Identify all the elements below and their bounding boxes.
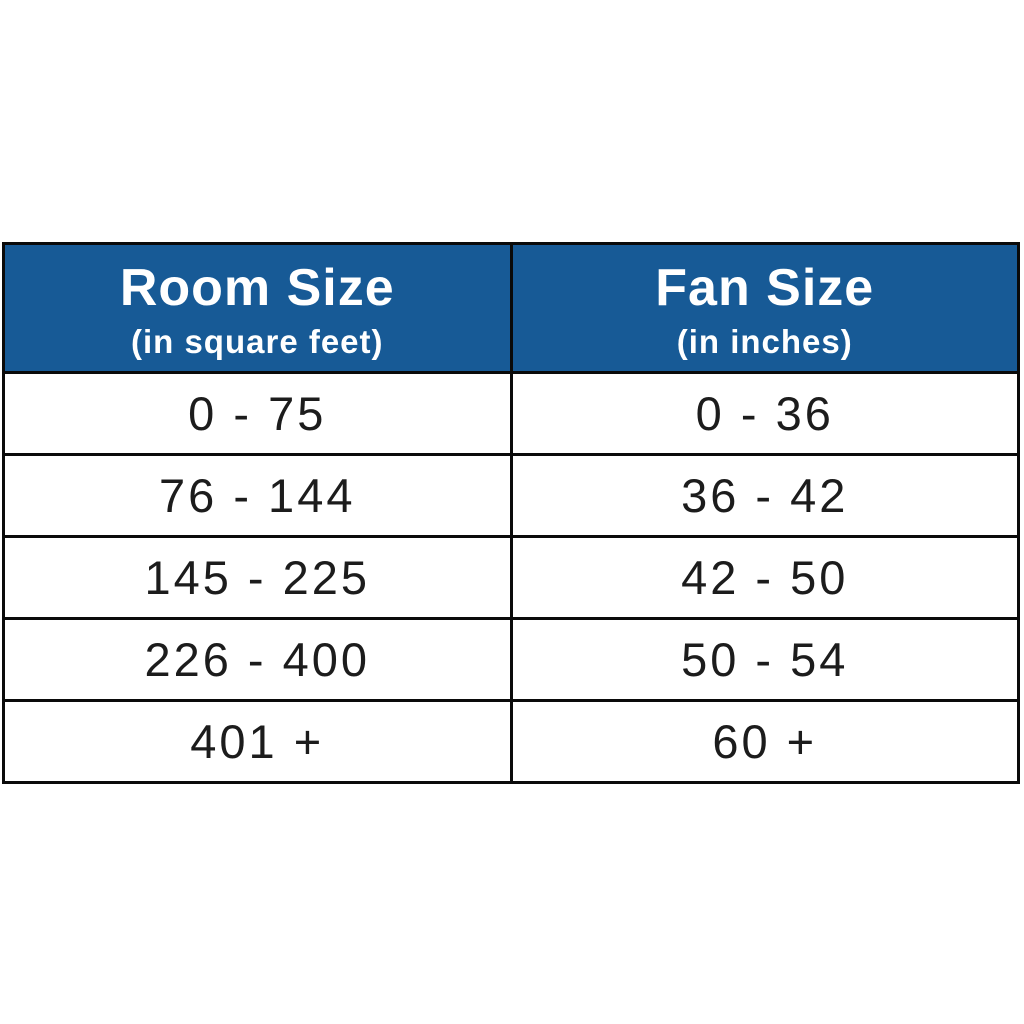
room-size-header-cell: Room Size (in square feet) [4,244,512,373]
room-fan-size-table: Room Size (in square feet) Fan Size (in … [2,242,1020,784]
fan-size-header-cell: Fan Size (in inches) [511,244,1019,373]
fan-size-cell: 50 - 54 [511,619,1019,701]
table-row: 145 - 225 42 - 50 [4,537,1019,619]
table-body: 0 - 75 0 - 36 76 - 144 36 - 42 145 - 225… [4,373,1019,783]
room-size-cell: 0 - 75 [4,373,512,455]
fan-size-cell: 60 + [511,701,1019,783]
table-row: 226 - 400 50 - 54 [4,619,1019,701]
table-header: Room Size (in square feet) Fan Size (in … [4,244,1019,373]
table-row: 76 - 144 36 - 42 [4,455,1019,537]
table-row: 401 + 60 + [4,701,1019,783]
room-size-title: Room Size [5,260,510,317]
room-size-cell: 401 + [4,701,512,783]
room-size-cell: 226 - 400 [4,619,512,701]
fan-size-title: Fan Size [513,260,1018,317]
fan-size-cell: 36 - 42 [511,455,1019,537]
page-background: Room Size (in square feet) Fan Size (in … [0,0,1024,1024]
fan-size-cell: 0 - 36 [511,373,1019,455]
table-row: 0 - 75 0 - 36 [4,373,1019,455]
table-header-row: Room Size (in square feet) Fan Size (in … [4,244,1019,373]
fan-size-cell: 42 - 50 [511,537,1019,619]
room-size-cell: 145 - 225 [4,537,512,619]
room-size-cell: 76 - 144 [4,455,512,537]
room-size-subtitle: (in square feet) [5,321,510,362]
fan-size-subtitle: (in inches) [513,321,1018,362]
